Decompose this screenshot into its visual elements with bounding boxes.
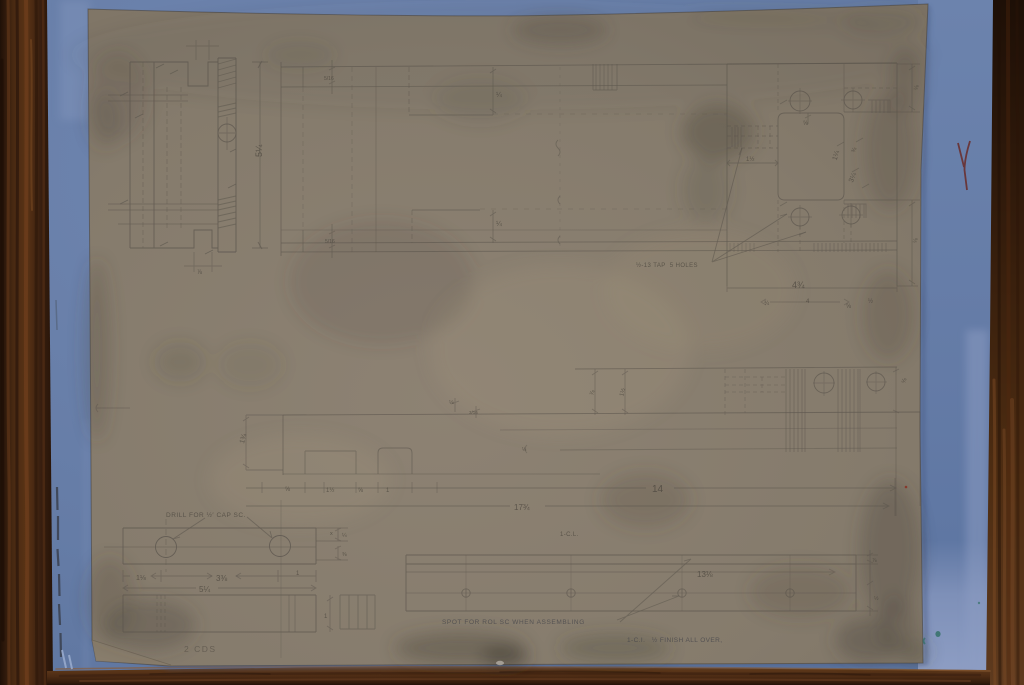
svg-text:½: ½ <box>874 595 879 602</box>
svg-text:⅞: ⅞ <box>872 558 877 564</box>
svg-text:x: x <box>330 531 333 537</box>
svg-text:SPOT FOR ROL SC WHEN ASSEMBLIN: SPOT FOR ROL SC WHEN ASSEMBLING <box>442 619 585 626</box>
svg-text:¼: ¼ <box>496 92 502 99</box>
svg-text:1⅛: 1⅛ <box>136 575 146 582</box>
svg-text:4¾: 4¾ <box>792 280 805 290</box>
svg-text:5/16: 5/16 <box>325 239 335 245</box>
svg-text:½-13 TAP 5 HOLES: ½-13 TAP 5 HOLES <box>636 262 698 269</box>
svg-text:1-C.L.: 1-C.L. <box>560 532 579 538</box>
svg-text:1½: 1½ <box>326 487 334 494</box>
svg-text:½: ½ <box>868 298 873 305</box>
svg-text:14: 14 <box>652 484 664 495</box>
svg-text:1½: 1½ <box>746 156 754 163</box>
svg-text:2 CDS: 2 CDS <box>184 644 217 654</box>
svg-text:⅛: ⅛ <box>449 400 454 406</box>
svg-text:3⅜: 3⅜ <box>216 574 227 583</box>
svg-text:13⅛: 13⅛ <box>697 570 713 579</box>
svg-text:5/16: 5/16 <box>324 76 334 82</box>
svg-text:⅜: ⅜ <box>342 552 347 558</box>
svg-text:5¼: 5¼ <box>199 585 210 594</box>
svg-text:3/16: 3/16 <box>469 410 478 415</box>
svg-text:17¾: 17¾ <box>514 503 530 512</box>
svg-text:5¼: 5¼ <box>254 144 264 157</box>
svg-text:DRILL FOR ½′ CAP SC.: DRILL FOR ½′ CAP SC. <box>166 511 246 519</box>
svg-text:¼: ¼ <box>496 221 502 228</box>
svg-text:¼: ¼ <box>342 533 347 539</box>
svg-text:1-C.I. ½ FINISH ALL OVER,: 1-C.I. ½ FINISH ALL OVER, <box>627 636 722 644</box>
